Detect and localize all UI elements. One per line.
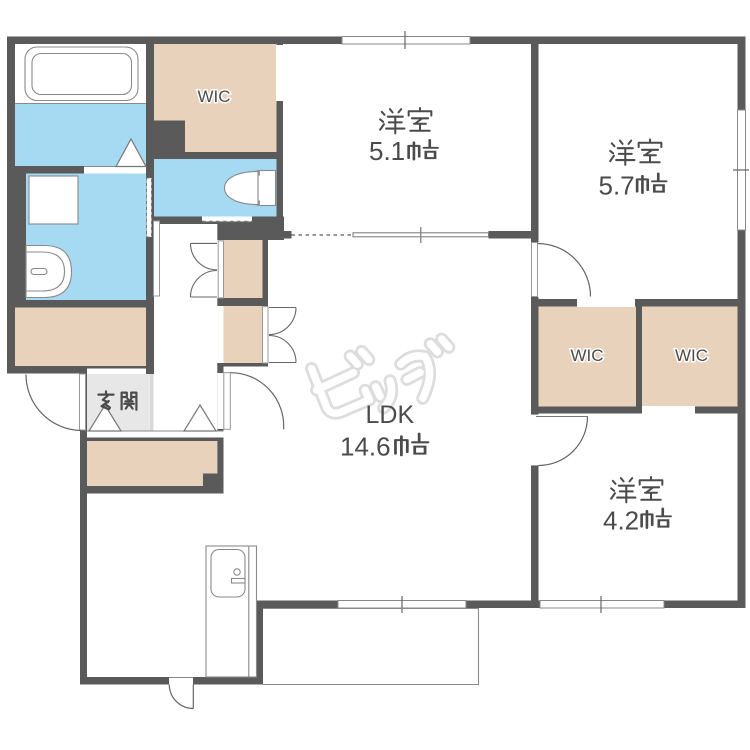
svg-text:5.1: 5.1: [369, 136, 405, 166]
svg-text:LDK: LDK: [366, 401, 415, 429]
svg-text:4.2: 4.2: [603, 506, 639, 536]
svg-text:14.6: 14.6: [340, 432, 391, 462]
svg-text:WIC: WIC: [571, 346, 604, 365]
svg-text:WIC: WIC: [198, 87, 231, 106]
svg-text:5.7: 5.7: [599, 171, 635, 201]
svg-text:WIC: WIC: [675, 346, 708, 365]
